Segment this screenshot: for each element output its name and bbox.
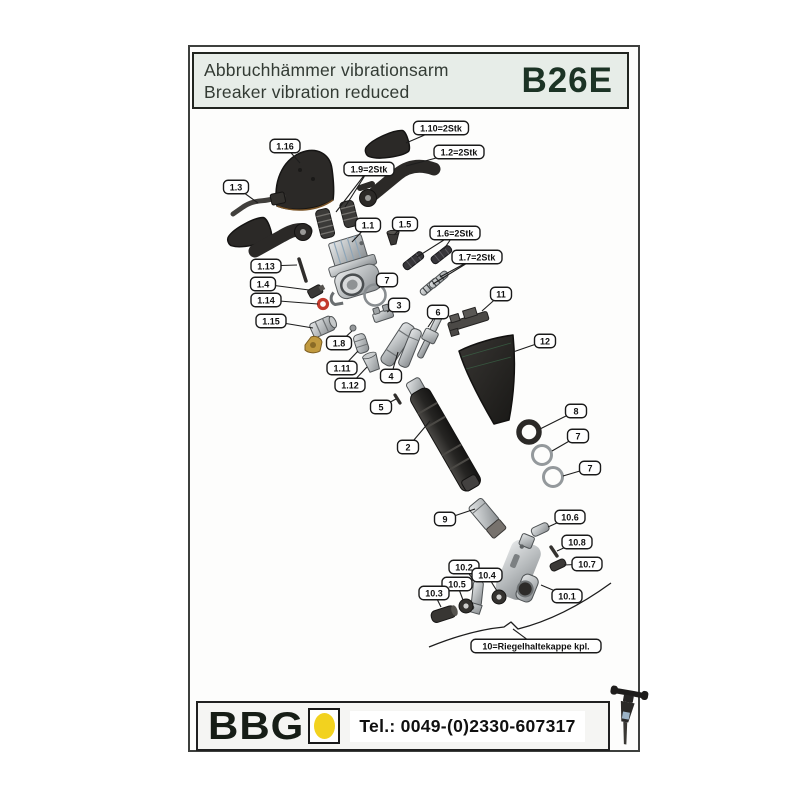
footer-bar: BBG Tel.: 0049-(0)2330-607317 <box>196 701 610 751</box>
title-german: Abbruchhämmer vibrationsarm <box>204 59 449 81</box>
header-box: Abbruchhämmer vibrationsarm Breaker vibr… <box>192 52 629 109</box>
phone-number: Tel.: 0049-(0)2330-607317 <box>350 711 584 742</box>
logo-yellow-dot <box>314 713 335 739</box>
catalog-page <box>188 45 640 752</box>
brand-logo: BBG <box>208 707 304 746</box>
page-title: Abbruchhämmer vibrationsarm Breaker vibr… <box>194 59 449 103</box>
logo-mark <box>308 708 340 744</box>
model-code: B26E <box>521 61 613 101</box>
title-english: Breaker vibration reduced <box>204 81 449 103</box>
